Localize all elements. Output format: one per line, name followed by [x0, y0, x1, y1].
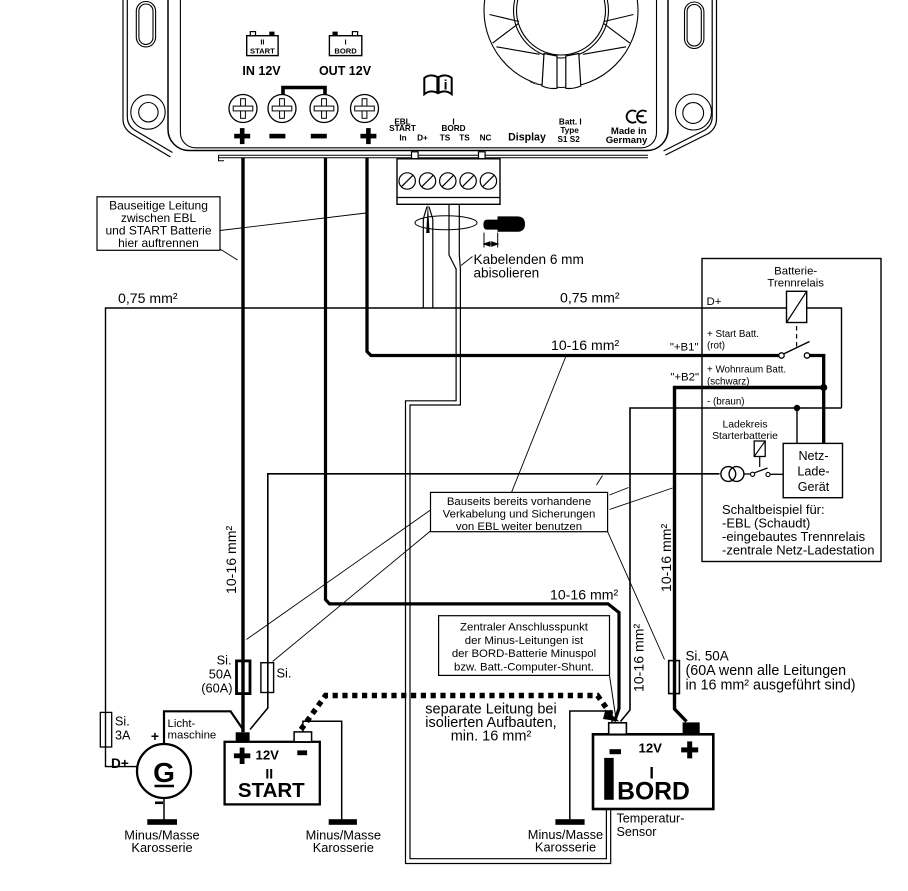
svg-text:+: + [151, 728, 159, 744]
svg-text:START: START [389, 124, 416, 133]
svg-text:maschine: maschine [168, 730, 217, 742]
svg-text:Batterie-: Batterie- [774, 266, 817, 278]
svg-text:BORD: BORD [617, 779, 690, 806]
svg-text:10-16 mm²: 10-16 mm² [550, 587, 618, 603]
svg-text:Karosserie: Karosserie [131, 840, 192, 855]
svg-text:50A: 50A [209, 667, 232, 682]
svg-text:i: i [444, 77, 448, 93]
svg-text:D+: D+ [707, 296, 722, 308]
svg-text:S1 S2: S1 S2 [557, 135, 580, 144]
svg-text:Germany: Germany [606, 135, 648, 146]
svg-text:Bauseits bereits vorhandene: Bauseits bereits vorhandene [447, 496, 591, 508]
svg-text:G: G [153, 757, 175, 788]
svg-text:hier auftrennen: hier auftrennen [118, 236, 199, 250]
svg-text:In: In [399, 134, 406, 143]
svg-text:0,75 mm²: 0,75 mm² [118, 290, 178, 306]
svg-text:Karosserie: Karosserie [313, 840, 374, 855]
svg-text:+ Wohnraum Batt.: + Wohnraum Batt. [707, 365, 786, 376]
svg-text:BORD: BORD [441, 124, 465, 133]
svg-text:Si.: Si. [277, 666, 292, 681]
svg-text:I: I [345, 38, 347, 47]
svg-text:12V: 12V [639, 741, 663, 756]
svg-text:abisolieren: abisolieren [474, 265, 540, 280]
svg-text:min. 16 mm²: min. 16 mm² [451, 729, 532, 745]
svg-text:10-16 mm²: 10-16 mm² [631, 624, 647, 692]
svg-text:TS: TS [440, 134, 451, 143]
svg-text:Si.: Si. [217, 653, 232, 668]
svg-text:Si.: Si. [115, 715, 130, 729]
svg-text:0,75 mm²: 0,75 mm² [560, 290, 620, 306]
svg-text:"+B2": "+B2" [670, 372, 699, 384]
svg-text:bzw. Batt.-Computer-Shunt.: bzw. Batt.-Computer-Shunt. [454, 662, 594, 674]
svg-text:12V: 12V [256, 748, 280, 763]
svg-text:START: START [250, 46, 275, 55]
svg-text:Licht-: Licht- [168, 718, 196, 730]
svg-text:(60A): (60A) [201, 681, 232, 696]
svg-text:Starterbatterie: Starterbatterie [712, 431, 778, 442]
svg-text:D+: D+ [111, 756, 129, 771]
svg-text:- (braun): - (braun) [707, 397, 745, 408]
svg-text:der Minus-Leitungen ist: der Minus-Leitungen ist [465, 635, 584, 647]
svg-text:Sensor: Sensor [617, 825, 657, 839]
svg-text:10-16 mm²: 10-16 mm² [551, 337, 619, 353]
svg-text:"+B1": "+B1" [670, 342, 699, 354]
svg-text:-zentrale Netz-Ladestation: -zentrale Netz-Ladestation [722, 543, 874, 558]
svg-text:+ Start Batt.: + Start Batt. [707, 329, 759, 340]
svg-text:3A: 3A [115, 729, 131, 743]
svg-text:D+: D+ [417, 134, 428, 143]
svg-text:Display: Display [508, 131, 546, 143]
svg-text:10-16 mm²: 10-16 mm² [658, 524, 674, 592]
svg-text:von EBL weiter benutzen: von EBL weiter benutzen [456, 521, 582, 533]
svg-text:Si. 50A: Si. 50A [686, 649, 729, 664]
svg-text:Netz-: Netz- [798, 449, 828, 463]
svg-text:Verkabelung und Sicherungen: Verkabelung und Sicherungen [443, 508, 596, 520]
svg-text:Karosserie: Karosserie [535, 840, 596, 855]
svg-text:BORD: BORD [334, 46, 357, 55]
svg-text:10-16 mm²: 10-16 mm² [223, 526, 239, 594]
svg-text:(rot): (rot) [707, 341, 725, 352]
svg-text:NC: NC [480, 134, 492, 143]
svg-text:TS: TS [459, 134, 470, 143]
svg-text:Type: Type [560, 126, 579, 135]
svg-text:Ladekreis: Ladekreis [722, 420, 767, 431]
svg-text:Gerät: Gerät [798, 480, 830, 494]
svg-text:Temperatur-: Temperatur- [617, 812, 685, 826]
svg-text:Trennrelais: Trennrelais [767, 278, 824, 290]
svg-text:(schwarz): (schwarz) [707, 377, 749, 388]
svg-text:der BORD-Batterie Minuspol: der BORD-Batterie Minuspol [452, 648, 596, 660]
svg-text:START: START [238, 779, 305, 802]
svg-text:Lade-: Lade- [797, 465, 829, 479]
svg-text:Zentraler Anschlusspunkt: Zentraler Anschlusspunkt [460, 621, 589, 633]
svg-text:IN 12V: IN 12V [242, 64, 281, 78]
svg-text:II: II [260, 38, 264, 47]
svg-text:OUT 12V: OUT 12V [319, 64, 372, 78]
svg-text:in 16 mm² ausgeführt sind): in 16 mm² ausgeführt sind) [686, 678, 856, 694]
